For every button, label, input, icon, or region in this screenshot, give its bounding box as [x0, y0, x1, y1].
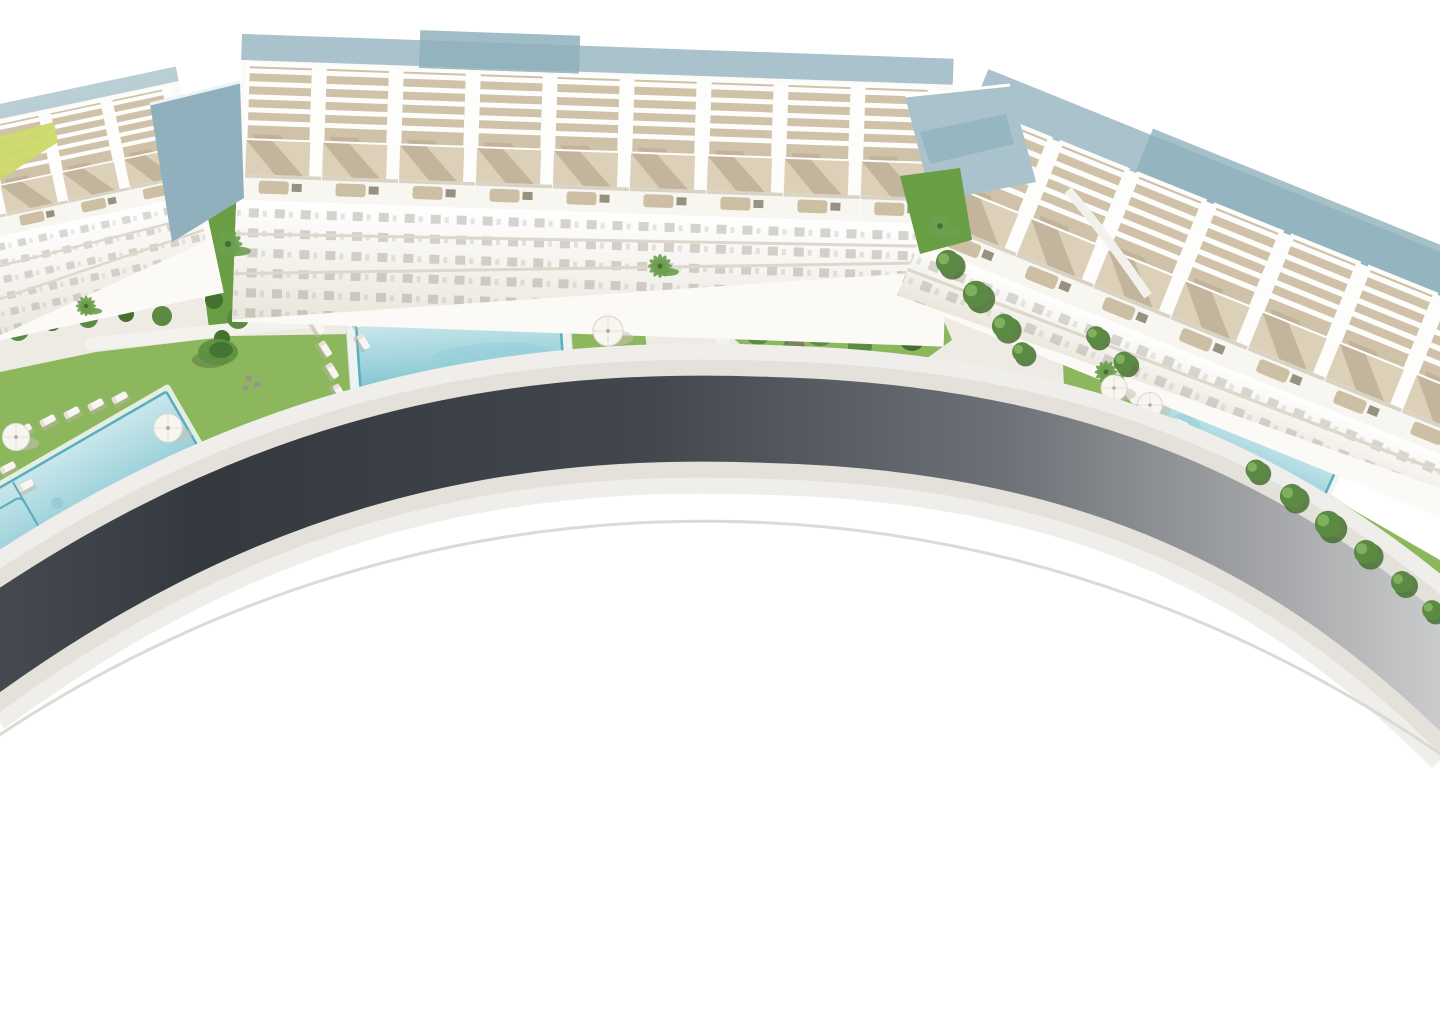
aerial-render-canvas — [0, 0, 1440, 1024]
aerial-render-stage — [0, 0, 1440, 1024]
townhouse-unit-row — [243, 64, 940, 224]
apartment-block-center — [232, 24, 954, 347]
ring-road — [0, 419, 1440, 715]
